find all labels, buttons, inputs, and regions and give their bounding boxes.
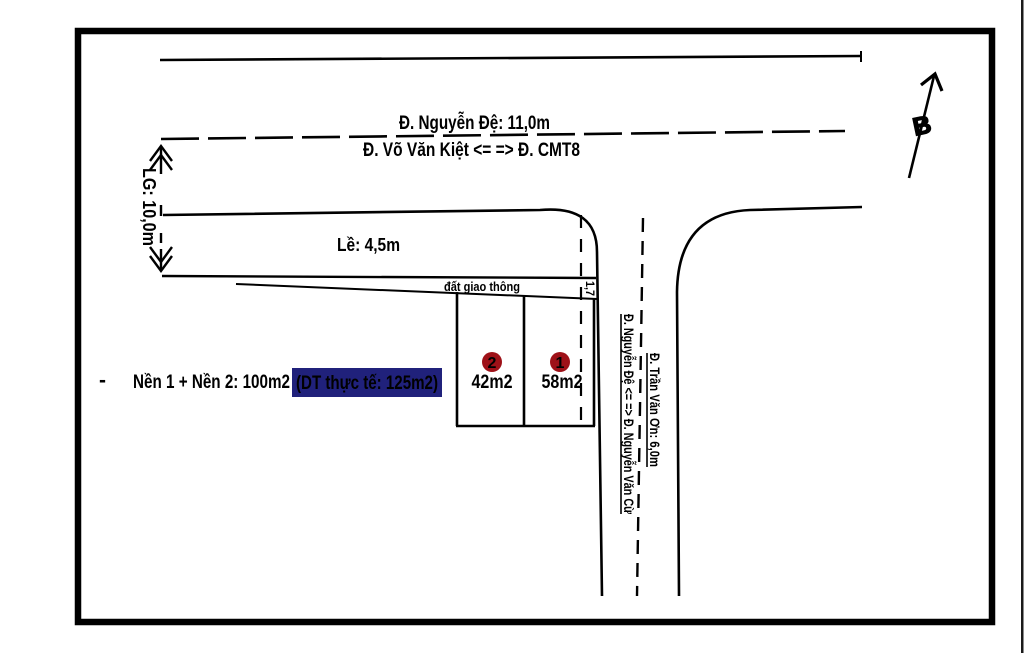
svg-text:1,7: 1,7 — [583, 281, 597, 296]
svg-text:-: - — [99, 369, 106, 392]
svg-text:2: 2 — [488, 355, 497, 372]
svg-text:42m2: 42m2 — [472, 372, 513, 393]
svg-text:Lề: 4,5m: Lề: 4,5m — [337, 235, 400, 255]
svg-text:Nền 1 + Nền 2: 100m2: Nền 1 + Nền 2: 100m2 — [133, 372, 290, 393]
svg-text:Đ. Nguyễn Đệ: 11,0m: Đ. Nguyễn Đệ: 11,0m — [399, 112, 550, 134]
svg-text:(DT thực tế: 125m2): (DT thực tế: 125m2) — [296, 373, 438, 394]
svg-text:LG: 10,0m: LG: 10,0m — [139, 168, 159, 246]
svg-text:đất giao thông: đất giao thông — [444, 279, 520, 294]
svg-text:Đ. Võ Văn Kiệt <= => Đ. CMT8: Đ. Võ Văn Kiệt <= => Đ. CMT8 — [363, 140, 580, 161]
svg-text:58m2: 58m2 — [542, 372, 583, 393]
svg-text:1: 1 — [556, 355, 565, 372]
svg-text:Đ. Trần Văn Ơn: 6,0m: Đ. Trần Văn Ơn: 6,0m — [647, 353, 663, 467]
svg-text:Đ. Nguyễn Đệ <= => Đ. Nguyễn V: Đ. Nguyễn Đệ <= => Đ. Nguyễn Văn Cừ — [621, 314, 637, 515]
